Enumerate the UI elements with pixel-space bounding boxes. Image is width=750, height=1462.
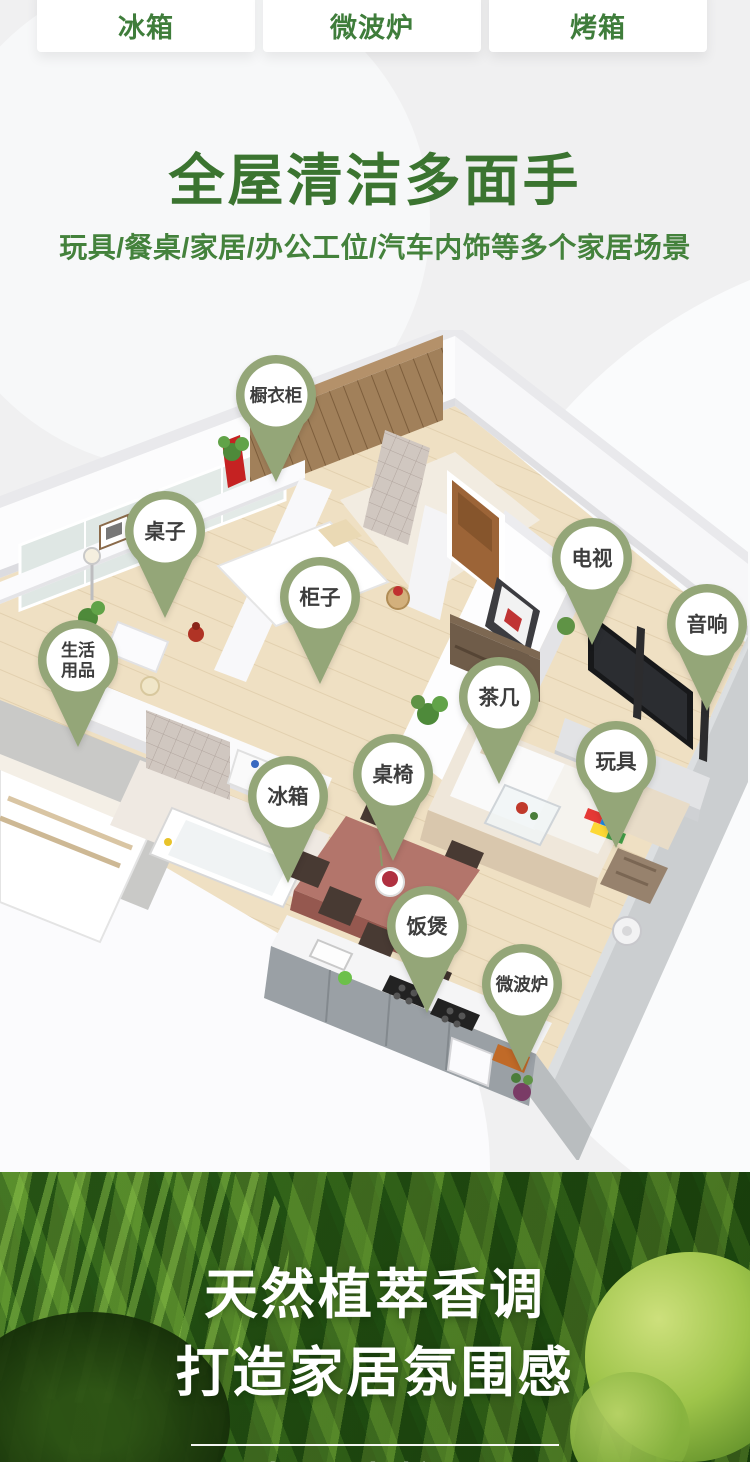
tab-microwave[interactable]: 微波炉 [263, 0, 481, 52]
pin-marker-icon: 生活用品 [36, 618, 120, 750]
tab-fridge[interactable]: 冰箱 [37, 0, 255, 52]
pin-marker-icon: 微波炉 [480, 942, 564, 1074]
svg-text:桌椅: 桌椅 [373, 762, 414, 786]
map-pin-rice-cooker: 饭煲 [385, 884, 469, 1016]
map-pin-desk: 桌子 [123, 489, 207, 621]
pin-marker-icon: 冰箱 [246, 754, 330, 886]
svg-text:柜子: 柜子 [300, 585, 341, 609]
map-pin-cabinet: 柜子 [278, 555, 362, 687]
pin-marker-icon: 橱衣柜 [234, 353, 318, 485]
top-tabs: 冰箱 微波炉 烤箱 [0, 0, 750, 60]
pin-marker-icon: 饭煲 [385, 884, 469, 1016]
svg-text:音响: 音响 [687, 612, 728, 636]
pin-marker-icon: 柜子 [278, 555, 362, 687]
pins-layer: 橱衣柜桌子柜子电视音响生活用品茶几玩具冰箱桌椅饭煲微波炉 [0, 330, 750, 1160]
tab-label: 冰箱 [118, 6, 174, 45]
map-pin-fridge: 冰箱 [246, 754, 330, 886]
page-title: 全屋清洁多面手 [0, 136, 750, 217]
map-pin-microwave: 微波炉 [480, 942, 564, 1074]
map-pin-daily-necessities: 生活用品 [36, 618, 120, 750]
pin-marker-icon: 音响 [665, 582, 749, 714]
svg-text:用品: 用品 [61, 661, 95, 680]
pin-marker-icon: 茶几 [457, 655, 541, 787]
map-pin-speaker: 音响 [665, 582, 749, 714]
svg-text:饭煲: 饭煲 [406, 914, 448, 938]
pin-marker-icon: 桌子 [123, 489, 207, 621]
page-subtitle: 玩具/餐桌/家居/办公工位/汽车内饰等多个家居场景 [0, 226, 750, 266]
bottom-banner: 天然植萃香调 打造家居氛围感 椰风青柠香 [0, 1172, 750, 1462]
map-pin-wardrobe: 橱衣柜 [234, 353, 318, 485]
svg-text:微波炉: 微波炉 [495, 974, 549, 994]
svg-text:冰箱: 冰箱 [268, 784, 309, 808]
map-pin-tea-table: 茶几 [457, 655, 541, 787]
tab-label: 烤箱 [570, 6, 626, 45]
svg-text:生活: 生活 [61, 640, 95, 660]
map-pin-tv: 电视 [550, 516, 634, 648]
page-root: 冰箱 微波炉 烤箱 全屋清洁多面手 玩具/餐桌/家居/办公工位/汽车内饰等多个家… [0, 0, 750, 1462]
svg-text:茶几: 茶几 [479, 686, 520, 709]
tab-oven[interactable]: 烤箱 [489, 0, 707, 52]
svg-text:玩具: 玩具 [596, 750, 637, 773]
svg-text:桌子: 桌子 [145, 519, 186, 543]
banner-divider [191, 1444, 559, 1446]
map-pin-dining-set: 桌椅 [351, 732, 435, 864]
banner-tagline: 椰风青柠香 [0, 1450, 750, 1462]
pin-marker-icon: 电视 [550, 516, 634, 648]
banner-headline-1: 天然植萃香调 [0, 1250, 750, 1329]
pin-marker-icon: 玩具 [574, 719, 658, 851]
map-pin-toys: 玩具 [574, 719, 658, 851]
pin-marker-icon: 桌椅 [351, 732, 435, 864]
svg-text:橱衣柜: 橱衣柜 [250, 385, 303, 405]
banner-headline-2: 打造家居氛围感 [0, 1328, 750, 1407]
svg-text:电视: 电视 [572, 547, 613, 570]
tab-label: 微波炉 [330, 6, 414, 45]
